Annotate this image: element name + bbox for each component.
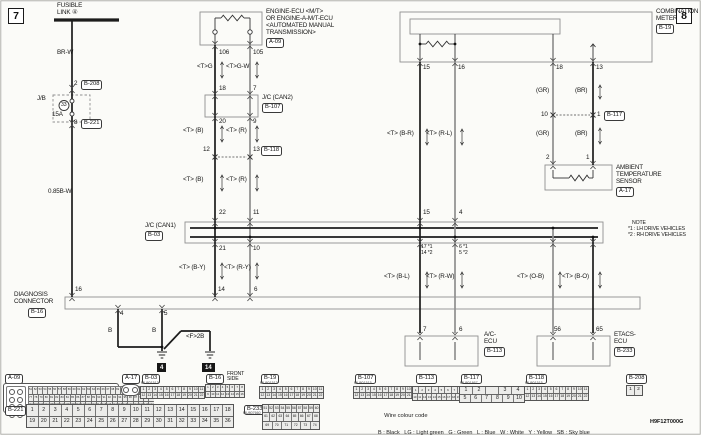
pin-65: 65	[291, 413, 298, 420]
round-pin	[9, 389, 15, 395]
pin-22: 22	[317, 393, 323, 398]
ground-symbol	[205, 352, 215, 358]
text-label: 10	[541, 112, 548, 118]
pin-23: 23	[72, 417, 84, 428]
junction-dot	[161, 346, 164, 349]
strip-connector-B-03: 12345678910111213141516171819202122	[140, 386, 205, 399]
pin-60: 60	[313, 405, 319, 412]
text-label: METER	[656, 16, 677, 22]
connector-ref-A-09: A-09	[266, 38, 284, 48]
text-label: 7	[253, 86, 256, 92]
text-label: <T> (B-O)	[562, 274, 589, 280]
connector-ref-B-03: B-03	[145, 231, 163, 241]
pin-row: 1213141516171819202122	[260, 392, 323, 398]
pin-5: 5	[72, 405, 84, 416]
pin-29: 29	[141, 417, 153, 428]
strip-connector-B-233: 5152535455565758596061626364656667686970…	[262, 404, 320, 430]
pin-16: 16	[239, 392, 244, 398]
connector-ref-B-233: B-233	[614, 347, 635, 357]
text-label: (BR)	[575, 131, 587, 137]
page-ref-left: 7	[8, 8, 24, 24]
text-label: 4	[459, 210, 462, 216]
junction-dot	[592, 236, 595, 239]
text-label: <T> (B-L)	[384, 274, 410, 280]
connector-ref-B-208: B-208	[81, 80, 102, 90]
text-label: BR-W	[57, 50, 73, 56]
connector-ref-B-221: B-221	[81, 119, 102, 129]
text-label: (GR)	[536, 131, 549, 137]
strip-ref-B-16: B-16	[206, 374, 224, 384]
pin-row: 1213141516171819202122	[525, 393, 588, 400]
twisted-pair-arrow	[460, 129, 463, 145]
pin-35: 35	[210, 417, 222, 428]
pin-9: 9	[502, 395, 513, 402]
connector-ref-A-17: A-17	[616, 187, 634, 197]
round-pin	[9, 397, 15, 403]
pin-10: 10	[130, 405, 142, 416]
combination-meter-box	[400, 12, 652, 62]
junction-dot	[214, 227, 217, 230]
pin-72: 72	[291, 422, 301, 429]
pin-9: 9	[118, 405, 130, 416]
pin-26: 26	[107, 417, 119, 428]
connector-ref-B-118: B-118	[261, 146, 282, 156]
text-label: 5 *2	[459, 251, 468, 256]
pin-28: 28	[130, 417, 142, 428]
pin-30: 30	[153, 417, 165, 428]
text-label: J/B	[37, 96, 46, 102]
pin-69: 69	[263, 422, 272, 429]
pin-6: 6	[470, 395, 481, 402]
text-label: 105	[253, 50, 263, 56]
text-label: *2 : RH DRIVE VEHICLES	[628, 233, 686, 238]
pin-64: 64	[283, 413, 290, 420]
part-number: MU807660	[243, 412, 261, 416]
text-label: 22	[219, 210, 226, 216]
twisted-pair-arrow	[255, 62, 258, 78]
text-label: (GR)	[536, 88, 549, 94]
text-label: <T> (R-W)	[426, 274, 454, 280]
strip-connector-B-107: 12345678910111213141516171819202122	[353, 386, 418, 399]
strip-ref-B-208: B-208	[626, 374, 647, 384]
text-label: <T> (B)	[183, 177, 203, 183]
text-label: B	[152, 328, 156, 334]
text-label: 13	[253, 147, 260, 153]
pin-68: 68	[312, 413, 319, 420]
connector-ref-B-113: B-113	[484, 347, 505, 357]
text-label: 15	[423, 65, 430, 71]
strip-connector-A-17	[121, 384, 140, 396]
terminal-circle	[70, 112, 74, 116]
strip-connector-B-118: 12345678910111213141516171819202122	[524, 386, 589, 401]
strip-connector-B-19: 12345678910111213141516171819202122	[259, 386, 324, 399]
text-label: 16	[75, 287, 82, 293]
pin-row: 910111213141516	[206, 391, 244, 398]
connector-ref-B-107: B-107	[262, 103, 283, 113]
pin-13: 13	[164, 405, 176, 416]
twisted-pair-arrow	[220, 62, 223, 78]
junction-dot	[454, 236, 457, 239]
resistor-symbol	[569, 175, 589, 181]
round-pin	[17, 389, 23, 395]
text-label: LINK ④	[57, 10, 78, 16]
text-label: <T> (B-Y)	[179, 265, 205, 271]
pin-10: 10	[513, 395, 524, 402]
combination-meter-inner-box	[410, 19, 560, 34]
twisted-pair-arrow	[598, 272, 601, 288]
pin-row: 5678910	[460, 394, 524, 402]
text-label: TRANSMISSION>	[266, 30, 316, 36]
pin-row: 697071727374	[263, 421, 319, 429]
text-label: <T> (R-L)	[426, 131, 452, 137]
pin-32: 32	[176, 417, 188, 428]
text-label: CONNECTOR	[14, 299, 53, 305]
terminal-circle	[70, 99, 74, 103]
pin-33: 33	[187, 417, 199, 428]
twisted-pair-arrow	[460, 272, 463, 288]
text-label: <T> (R-Y)	[224, 265, 251, 271]
pin-row: 12	[627, 386, 642, 395]
pin-14: 14	[176, 405, 188, 416]
text-label: 5	[164, 311, 167, 317]
wiring-diagram-page: 7 8 Wire colour code B : Black LG : Ligh…	[0, 0, 701, 435]
connector-ref-B-117: B-117	[604, 111, 625, 121]
resistor-symbol	[426, 41, 449, 47]
pin-5: 5	[460, 395, 470, 402]
pin-21: 21	[49, 417, 61, 428]
text-label: 18	[556, 65, 563, 71]
text-label: 18	[219, 86, 226, 92]
resistor-symbol	[221, 15, 244, 21]
twisted-pair-arrow	[220, 175, 223, 191]
wire	[164, 331, 181, 349]
strip-ref-B-221: B-221	[5, 406, 26, 416]
terminal-circle	[248, 30, 252, 34]
pin-15: 15	[187, 405, 199, 416]
text-label: 6	[459, 327, 462, 333]
ac-ecu-box	[405, 336, 478, 366]
pin-16: 16	[199, 405, 211, 416]
text-label: <T> (R)	[226, 128, 247, 134]
pin-8: 8	[107, 405, 119, 416]
text-label: 21	[219, 246, 226, 252]
pin-3: 3	[498, 387, 511, 394]
text-label: 6	[254, 287, 257, 293]
pin-22: 22	[582, 394, 588, 400]
text-label: 14 *2	[421, 251, 432, 256]
pin-31: 31	[164, 417, 176, 428]
text-label: 20	[219, 119, 226, 125]
pin-20: 20	[38, 417, 50, 428]
pin-row: 51525354555657585960	[263, 405, 319, 412]
twisted-pair-arrow	[255, 263, 258, 279]
pin-row: 123456789101112131415161718	[27, 405, 233, 416]
junction-dot	[249, 236, 252, 239]
pin-22: 22	[61, 417, 73, 428]
round-pin	[123, 387, 129, 393]
text-label: 2	[546, 155, 549, 161]
pin-27: 27	[118, 417, 130, 428]
pin-67: 67	[305, 413, 312, 420]
pin-7: 7	[95, 405, 107, 416]
pin-62: 62	[269, 413, 276, 420]
text-label: J/C (CAN1)	[145, 223, 176, 229]
junction-dot	[419, 43, 422, 46]
pin-3: 3	[49, 405, 61, 416]
text-label: 10	[253, 246, 260, 252]
etacs-ecu-box	[537, 336, 610, 366]
strip-ref-B-113: B-113	[416, 374, 437, 384]
pin-	[485, 387, 498, 394]
pin-22: 22	[198, 393, 204, 398]
text-label: <T> (B)	[183, 128, 203, 134]
pin-8: 8	[491, 395, 502, 402]
text-label: 14	[218, 287, 225, 293]
legend-rows: B : Black LG : Light green G : Green L :…	[378, 429, 601, 435]
text-label: SENSOR	[616, 179, 642, 185]
pin-row: 6162636465666768	[263, 412, 319, 420]
strip-connector-B-117: 12345678910	[459, 386, 525, 403]
text-label: 33	[61, 103, 66, 108]
ground-ref-14: 14	[202, 363, 215, 372]
twisted-pair-arrow	[255, 175, 258, 191]
text-label: ECU	[614, 339, 627, 345]
ground-ref-4: 4	[157, 363, 166, 372]
text-label: SIDE	[227, 377, 239, 382]
text-label: J/C (CAN2)	[262, 95, 293, 101]
pin-17: 17	[210, 405, 222, 416]
pin-6: 6	[84, 405, 96, 416]
connector-ref-B-16: B-16	[28, 308, 46, 318]
text-label: B	[108, 328, 112, 334]
twisted-pair-arrow	[220, 126, 223, 142]
text-label: 15	[423, 210, 430, 216]
text-label: 16	[458, 65, 465, 71]
round-pin	[17, 397, 23, 403]
wire-colour-code-legend: Wire colour code B : Black LG : Light gr…	[378, 403, 601, 435]
text-label: (BR)	[575, 88, 587, 94]
pin-70: 70	[272, 422, 282, 429]
text-label: 8	[74, 120, 77, 126]
diagram-code: H9F12T000G	[650, 419, 683, 425]
text-label: 2	[74, 81, 77, 87]
text-label: <T> (B-R)	[387, 131, 414, 137]
text-label: 11	[253, 210, 259, 216]
text-label: 15A	[52, 112, 63, 118]
pin-19: 19	[27, 417, 38, 428]
junction-dot	[552, 227, 555, 230]
text-label: ECU	[484, 339, 497, 345]
text-label: 12	[203, 147, 210, 153]
pin-24: 24	[84, 417, 96, 428]
pin-1: 1	[627, 386, 634, 395]
pin-25: 25	[95, 417, 107, 428]
pin-row: 1213141516171819202122	[141, 392, 204, 398]
pin-1: 1	[27, 405, 38, 416]
text-label: 0.85B-W	[48, 189, 71, 195]
connector-ref-B-19: B-19	[656, 24, 674, 34]
text-label: <F>2B	[186, 334, 204, 340]
text-label: <T> (R)	[226, 177, 247, 183]
pin-2: 2	[38, 405, 50, 416]
pin-73: 73	[300, 422, 310, 429]
pin-row: 1234	[460, 387, 524, 394]
text-label: 56	[554, 327, 561, 333]
text-label: <T>G	[197, 64, 213, 70]
pin-12: 12	[153, 405, 165, 416]
pin-row: 1213141516171819202122	[354, 392, 417, 398]
strip-ref-A-17: A-17	[122, 374, 140, 384]
strip-connector-B-16: 12345678910111213141516	[205, 384, 245, 398]
text-label: <T>G-W	[226, 64, 249, 70]
strip-connector-B-208: 12	[626, 385, 643, 396]
text-label: 106	[219, 50, 229, 56]
text-label: 1	[597, 112, 600, 118]
pin-2: 2	[634, 386, 642, 395]
round-pin	[132, 387, 138, 393]
text-label: 13	[596, 65, 603, 71]
pin-11: 11	[141, 405, 153, 416]
pin-row: 192021222324252627282930313233343536	[27, 416, 233, 428]
text-label: 7	[423, 327, 426, 333]
pin-4: 4	[61, 405, 73, 416]
junction-dot	[454, 43, 457, 46]
twisted-pair-arrow	[255, 126, 258, 142]
twisted-pair-arrow	[598, 85, 601, 99]
pin-1: 1	[460, 387, 472, 394]
terminal-circle	[213, 30, 217, 34]
pin-66: 66	[298, 413, 305, 420]
pin-36: 36	[222, 417, 234, 428]
pin-2: 2	[472, 387, 485, 394]
pin-4: 4	[511, 387, 524, 394]
pin-18: 18	[222, 405, 234, 416]
text-label: 4	[120, 311, 123, 317]
strip-connector-B-221: 1234567891011121314151617181920212223242…	[26, 404, 234, 428]
text-label: 65	[596, 327, 603, 333]
text-label: <T> (O-B)	[517, 274, 544, 280]
pin-7: 7	[481, 395, 492, 402]
pin-34: 34	[199, 417, 211, 428]
pin-71: 71	[281, 422, 291, 429]
pin-63: 63	[276, 413, 283, 420]
legend-row: B : Black LG : Light green G : Green L :…	[378, 429, 601, 435]
text-label: 9	[253, 119, 256, 125]
junction-dot	[419, 227, 422, 230]
pin-74: 74	[310, 422, 320, 429]
ground-symbol	[157, 352, 167, 358]
twisted-pair-arrow	[598, 128, 601, 144]
text-label: 1	[586, 155, 589, 161]
legend-title: Wire colour code	[384, 413, 428, 419]
